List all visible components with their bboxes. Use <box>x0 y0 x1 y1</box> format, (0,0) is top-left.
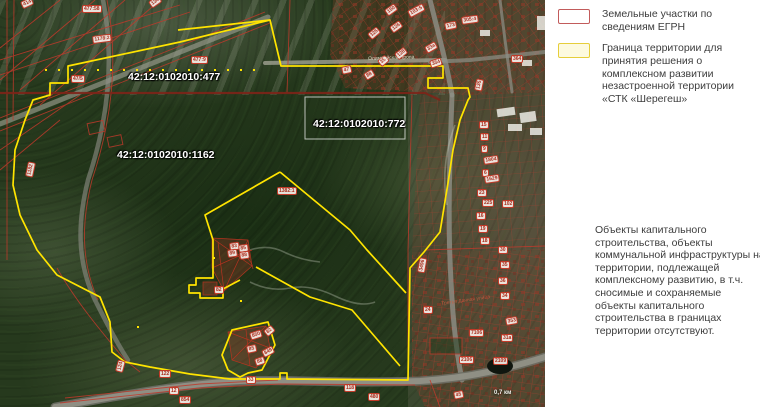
cadastral-number-label: 42:12:0102010:477 <box>128 72 220 83</box>
parcel-chip: 9 <box>481 145 488 153</box>
parcel-chip: 480 <box>368 393 380 401</box>
parcel-chip: 2106 <box>459 356 474 364</box>
parcel-chip: 82 <box>214 286 224 294</box>
parcel-chip: 1382:1 <box>277 187 297 195</box>
cadastral-number-label: 42:12:0102010:772 <box>313 119 405 130</box>
parcel-chip: 854 <box>179 396 191 404</box>
parcel-chip: 34 <box>500 292 510 300</box>
legend-panel: Земельные участки по сведениям ЕГРН Гран… <box>545 0 760 407</box>
page: 414134477:581178:247/5477:91182305:41731… <box>0 0 760 407</box>
legend-item-label: Граница территории для принятия решения … <box>602 42 752 106</box>
parcel-chip: 23 <box>477 189 487 197</box>
parcel-chip: 18 <box>480 237 490 245</box>
map-overlay <box>0 0 545 407</box>
cadastral-number-label: 42:12:0102010:1162 <box>117 150 215 161</box>
legend-item-territory: Граница территории для принятия решения … <box>558 42 753 106</box>
parcel-chip: 477:58 <box>82 5 102 13</box>
egrn-parcels-swatch <box>558 9 590 24</box>
parcel-chip: 89 <box>227 249 238 258</box>
parcel-chip: 11 <box>480 133 489 141</box>
parcel-chip: 122 <box>159 370 171 378</box>
parcel-chip: 47/5 <box>71 75 85 83</box>
parcel-chip: 19 <box>478 225 488 233</box>
parcel-chip: 30 <box>498 246 508 254</box>
capital-objects-note: Объекты капитального строительства, объе… <box>595 224 760 337</box>
parcel-chip: 7106 <box>469 329 484 337</box>
parcel-chip: 16 <box>476 212 486 220</box>
parcel-chip: 225 <box>482 199 494 207</box>
parcel-chip: 15 <box>479 121 489 129</box>
map-scale-label: 0,7 км <box>494 390 511 396</box>
parcel-chip: 31а <box>501 334 513 342</box>
parcel-chip: 102 <box>502 200 514 208</box>
parcel-chip: 477:9 <box>191 56 208 64</box>
territory-boundary-swatch <box>558 43 590 58</box>
parcel-chip: 36 <box>498 277 508 285</box>
parcel-chip: 364 <box>511 55 523 63</box>
parcel-chip: 118 <box>344 384 356 392</box>
map-canvas: 414134477:581178:247/5477:91182305:41731… <box>0 0 545 407</box>
parcel-chip: 33 <box>246 376 256 384</box>
legend-item-egrn: Земельные участки по сведениям ЕГРН <box>558 8 753 34</box>
parcel-chip: 2109 <box>493 357 508 365</box>
parcel-chip: 12 <box>169 387 179 395</box>
legend-item-label: Земельные участки по сведениям ЕГРН <box>602 8 752 34</box>
parcel-chip: 88 <box>239 251 250 260</box>
parcel-chip: 35 <box>500 261 510 269</box>
parcel-chip: 24 <box>423 306 433 314</box>
